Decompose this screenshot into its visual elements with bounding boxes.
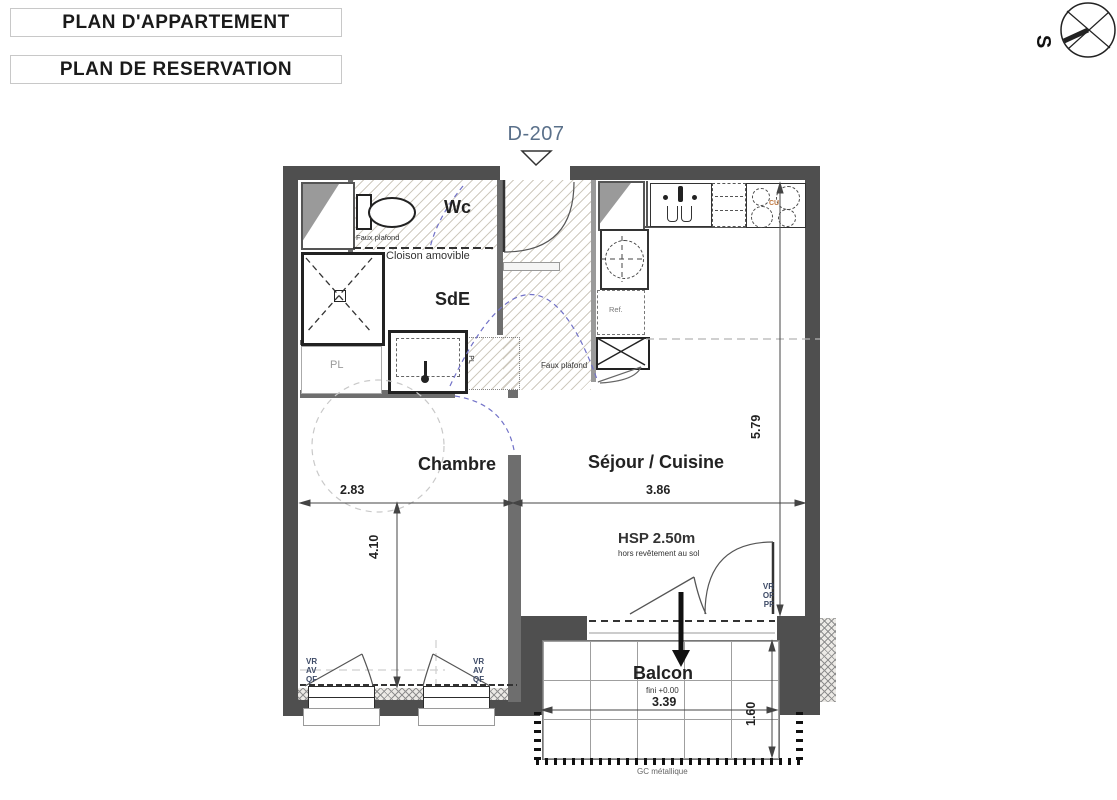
balcony-railing-right bbox=[796, 712, 803, 760]
closet-pl-label: PL bbox=[330, 359, 343, 371]
railing-label: GC métallique bbox=[637, 767, 688, 776]
dim-chambre-width: 2.83 bbox=[340, 483, 364, 497]
toilet-bowl bbox=[368, 197, 416, 228]
balcony-door-swing-left bbox=[630, 577, 706, 614]
room-label-chambre: Chambre bbox=[418, 454, 496, 475]
plan-title-reservation: PLAN DE RESERVATION bbox=[10, 55, 342, 84]
entry-shelf bbox=[503, 262, 560, 271]
dim-sejour-depth: 5.79 bbox=[749, 415, 763, 439]
technical-duct-box bbox=[596, 337, 650, 370]
hsp-note-label: hors revêtement au sol bbox=[618, 549, 699, 558]
chambre-door-swing bbox=[312, 380, 444, 512]
refrigerator-label: Ref. bbox=[609, 305, 623, 314]
cabinet-shelf-line-2 bbox=[715, 210, 743, 211]
wall-left bbox=[283, 166, 298, 716]
vanity-basin bbox=[396, 338, 460, 377]
kitchen-faucet bbox=[678, 186, 683, 202]
floor-plan-page: PLAN D'APPARTEMENT PLAN DE RESERVATION D… bbox=[0, 0, 1117, 800]
compass-icon bbox=[1061, 3, 1115, 57]
burner-4 bbox=[778, 209, 796, 227]
window-sill-right bbox=[418, 708, 495, 726]
cooktop: CU bbox=[746, 183, 806, 228]
duct-shaft-kitchen bbox=[598, 181, 645, 231]
wall-balcony-door-right bbox=[777, 616, 820, 640]
window-tags-left: VRAVQF bbox=[306, 657, 317, 684]
dim-balcon-width: 3.39 bbox=[652, 695, 676, 709]
closet-pl-sde-label: PL bbox=[467, 355, 474, 364]
balcony-railing-bottom bbox=[536, 758, 802, 765]
kitchen-counter-left-edge bbox=[646, 181, 648, 227]
sink-knob-right bbox=[692, 195, 697, 200]
burner-2 bbox=[776, 186, 800, 210]
room-label-sejour: Séjour / Cuisine bbox=[588, 452, 724, 473]
balcony-level-label: fini +0.00 bbox=[646, 686, 679, 695]
vanity-faucet bbox=[421, 375, 429, 383]
balcony-railing-left bbox=[534, 712, 541, 760]
hsp-label: HSP 2.50m bbox=[618, 530, 695, 547]
window-chambre-right bbox=[423, 686, 490, 710]
unit-marker-triangle bbox=[522, 151, 551, 165]
kitchen-cabinet bbox=[712, 183, 746, 227]
duct-shaft-wc bbox=[301, 182, 355, 250]
cabinet-shelf-line-1 bbox=[715, 196, 743, 197]
partition-entry-sde bbox=[497, 180, 503, 335]
dim-chambre-depth: 4.10 bbox=[367, 535, 381, 559]
wall-top-left bbox=[283, 166, 500, 180]
balcony-door-tags: VROFPF bbox=[758, 582, 774, 609]
wall-right bbox=[805, 166, 820, 630]
burner-1 bbox=[752, 188, 770, 206]
faux-plafond-label-wc: Faux plafond bbox=[356, 233, 399, 242]
dim-balcon-depth: 1.60 bbox=[744, 702, 758, 726]
sink-bowl-right bbox=[681, 206, 692, 222]
window-tags-right: VRAVQF bbox=[473, 657, 484, 684]
washing-machine bbox=[600, 229, 649, 290]
compass-south-label: S bbox=[1031, 35, 1054, 48]
wall-balcony-door-left bbox=[517, 616, 587, 640]
kitchen-sink-unit bbox=[650, 183, 712, 227]
balcony-pier-right bbox=[780, 640, 820, 715]
vanity-sink bbox=[388, 330, 468, 394]
wall-top-right bbox=[570, 166, 820, 180]
cloison-amovible-label: Cloison amovible bbox=[386, 250, 470, 262]
faux-plafond-label-sejour: Faux plafond bbox=[541, 361, 587, 370]
washing-machine-drum bbox=[605, 240, 644, 279]
sink-knob-left bbox=[663, 195, 668, 200]
sink-bowl-left bbox=[667, 206, 678, 222]
burner-3 bbox=[751, 206, 773, 228]
partition-chambre-top-stub bbox=[508, 390, 518, 398]
partition-chambre-sejour bbox=[508, 455, 521, 702]
dim-sejour-width: 3.86 bbox=[646, 483, 670, 497]
window-chambre-left bbox=[308, 686, 375, 710]
cooktop-label: CU bbox=[769, 200, 779, 207]
window-sill-left bbox=[303, 708, 380, 726]
plan-title-appartement: PLAN D'APPARTEMENT bbox=[10, 8, 342, 37]
room-label-balcon: Balcon bbox=[633, 663, 693, 684]
insulation-strip-right bbox=[820, 618, 836, 702]
room-label-sde: SdE bbox=[435, 289, 470, 310]
balcony-door-opening bbox=[587, 617, 777, 639]
shower-drain bbox=[334, 290, 346, 302]
unit-number-label: D-207 bbox=[505, 123, 567, 146]
room-label-wc: Wc bbox=[444, 197, 471, 218]
